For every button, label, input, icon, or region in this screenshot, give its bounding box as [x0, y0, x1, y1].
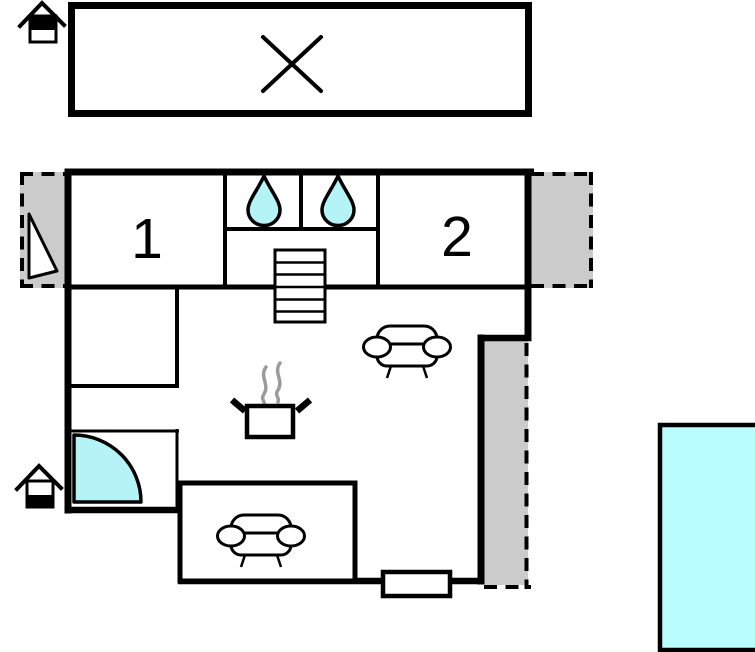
pot-handle-right — [297, 400, 310, 411]
house-storey-icon-lower — [17, 466, 61, 507]
house-filled-storey-lower — [27, 495, 53, 507]
floorplan-drawing: 1 2 — [0, 0, 755, 652]
annex-outline — [72, 6, 529, 114]
room-2-label: 2 — [441, 205, 473, 269]
terrace-right-area — [531, 172, 593, 288]
water-drop-icon-1 — [248, 176, 280, 225]
steam-line — [277, 363, 280, 402]
house-filled-storey-upper — [30, 16, 56, 30]
annex-outbuilding — [72, 6, 529, 114]
steam-line — [263, 367, 266, 406]
stairs-icon — [275, 250, 325, 322]
pot-body — [247, 406, 293, 437]
pool-icon — [660, 425, 755, 650]
terrace-left — [20, 172, 68, 288]
sofa-icon-living-room — [364, 326, 451, 378]
terrace-strip-area — [484, 341, 528, 585]
pot-handle-left — [232, 400, 245, 411]
terrace-strip-right — [484, 341, 531, 589]
water-drop-icon-2 — [322, 176, 354, 225]
terrace-right — [531, 172, 593, 288]
door-swing-icon-entrance — [74, 435, 141, 502]
cooking-pot-icon — [232, 363, 310, 437]
room-1-label: 1 — [131, 207, 163, 271]
floorplan-canvas: 1 2 — [0, 0, 755, 652]
window-icon — [383, 572, 450, 596]
house-storey-icon-upper — [20, 3, 64, 42]
